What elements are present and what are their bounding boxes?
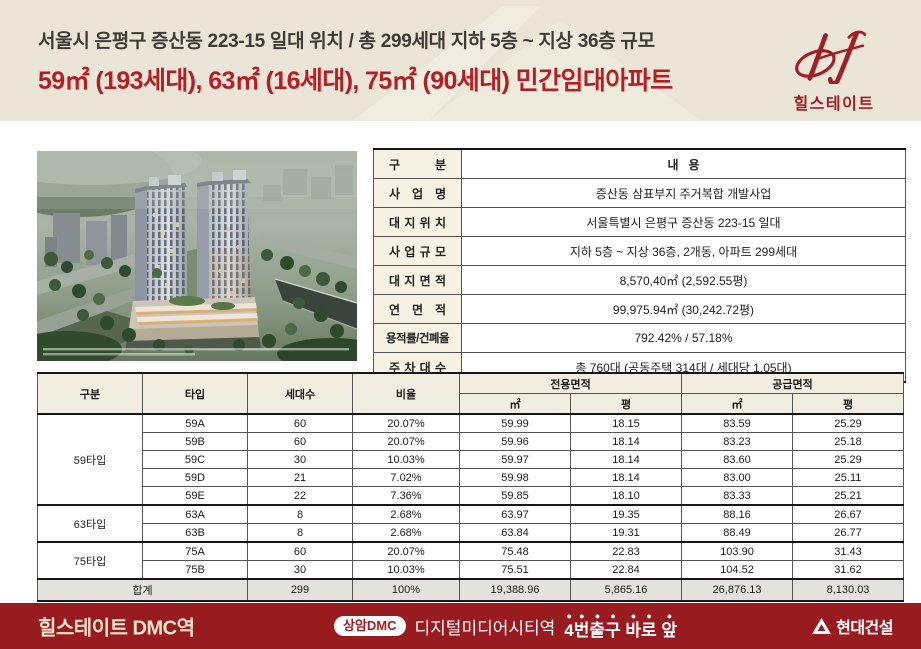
- col-header-supply-area: 공급면적: [682, 373, 904, 394]
- info-row-gross-area: 연 면 적 99,975.94㎡ (30,242.72평): [374, 295, 906, 324]
- cell-ex-py: 18.15: [571, 414, 682, 433]
- unit-row-59c: 59C 30 10.03% 59.97 18.14 83.60 25.29: [38, 451, 904, 469]
- cell-ratio: 10.03%: [353, 561, 460, 580]
- cell-ex-sqm: 59.96: [460, 433, 571, 451]
- unit-row-59b: 59B 60 20.07% 59.96 18.14 83.23 25.18: [38, 433, 904, 451]
- header-band: 서울시 은평구 증산동 223-15 일대 위치 / 총 299세대 지하 5층…: [0, 0, 921, 121]
- unit-row-63b: 63B 8 2.68% 63.84 19.31 88.49 26.77: [38, 524, 904, 543]
- total-su-py: 8,130.03: [793, 579, 904, 601]
- cell-ex-py: 18.14: [571, 433, 682, 451]
- col-header-pyeong: 평: [571, 394, 682, 415]
- cell-households: 21: [248, 469, 353, 487]
- cell-su-sqm: 88.16: [682, 505, 793, 524]
- cell-households: 60: [248, 542, 353, 561]
- project-summary-line: 서울시 은평구 증산동 223-15 일대 위치 / 총 299세대 지하 5층…: [38, 26, 672, 53]
- cell-ex-sqm: 59.97: [460, 451, 571, 469]
- cell-su-sqm: 83.33: [682, 487, 793, 506]
- cell-ex-py: 22.84: [571, 561, 682, 580]
- cell-type: 63A: [143, 505, 248, 524]
- group-label-75: 75타입: [38, 542, 143, 579]
- cell-su-py: 25.21: [793, 487, 904, 506]
- total-households: 299: [248, 579, 353, 601]
- cell-su-sqm: 103.90: [682, 542, 793, 561]
- cell-type: 59A: [143, 414, 248, 433]
- cell-households: 30: [248, 561, 353, 580]
- cell-su-py: 31.62: [793, 561, 904, 580]
- info-value: 지하 5층 ~ 지상 36층, 2개동, 아파트 299세대: [462, 237, 906, 266]
- exit-emphasis-text: 4번출구 바로 앞: [564, 611, 677, 641]
- cell-ex-sqm: 75.48: [460, 542, 571, 561]
- cell-ex-sqm: 75.51: [460, 561, 571, 580]
- total-ex-py: 5,865.16: [571, 579, 682, 601]
- info-label: 용적률/건폐율: [374, 324, 462, 353]
- group-label-59: 59타입: [38, 414, 143, 505]
- info-value: 서울특별시 은평구 증산동 223-15 일대: [462, 208, 906, 237]
- group-label-63: 63타입: [38, 505, 143, 542]
- cell-ex-sqm: 63.84: [460, 524, 571, 543]
- station-name: 디지털미디어시티역: [415, 614, 556, 639]
- info-label: 사 업 규 모: [374, 237, 462, 266]
- cell-ex-sqm: 59.99: [460, 414, 571, 433]
- unit-header-row-1: 구분 타입 세대수 비율 전용면적 공급면적: [38, 373, 904, 394]
- cell-su-py: 26.67: [793, 505, 904, 524]
- info-value: 792.42% / 57.18%: [462, 324, 906, 353]
- cell-households: 8: [248, 505, 353, 524]
- col-header-households: 세대수: [248, 373, 353, 414]
- building-rendering-image: [37, 151, 357, 361]
- cell-households: 22: [248, 487, 353, 506]
- info-label: 대 지 면 적: [374, 266, 462, 295]
- hillstate-script-h-icon: [786, 28, 882, 84]
- cell-households: 60: [248, 433, 353, 451]
- cell-ratio: 20.07%: [353, 414, 460, 433]
- cell-ratio: 20.07%: [353, 433, 460, 451]
- total-ratio: 100%: [353, 579, 460, 601]
- cell-su-py: 25.29: [793, 451, 904, 469]
- cell-households: 60: [248, 414, 353, 433]
- cell-su-sqm: 88.49: [682, 524, 793, 543]
- cell-su-sqm: 83.23: [682, 433, 793, 451]
- cell-households: 8: [248, 524, 353, 543]
- cell-su-py: 31.43: [793, 542, 904, 561]
- col-header-exclusive-area: 전용면적: [460, 373, 682, 394]
- info-label: 사 업 명: [374, 179, 462, 208]
- flyer-page: 서울시 은평구 증산동 223-15 일대 위치 / 총 299세대 지하 5층…: [0, 0, 921, 649]
- unit-row-75b: 75B 30 10.03% 75.51 22.84 104.52 31.62: [38, 561, 904, 580]
- cell-type: 59E: [143, 487, 248, 506]
- info-header-label: 구 분: [374, 149, 462, 179]
- unit-row-75a: 75타입 75A 60 20.07% 75.48 22.83 103.90 31…: [38, 542, 904, 561]
- info-value: 증산동 삼표부지 주거복합 개발사업: [462, 179, 906, 208]
- location-highlight: 상암DMC 디지털미디어시티역 4번출구 바로 앞: [334, 611, 677, 641]
- cell-ex-py: 22.83: [571, 542, 682, 561]
- unit-mix-headline: 59㎡ (193세대), 63㎡ (16세대), 75㎡ (90세대) 민간임대…: [38, 61, 672, 97]
- cell-ex-py: 19.35: [571, 505, 682, 524]
- cell-ex-py: 18.14: [571, 469, 682, 487]
- cell-type: 63B: [143, 524, 248, 543]
- col-header-sqm: ㎡: [682, 394, 793, 415]
- total-su-sqm: 26,876.13: [682, 579, 793, 601]
- cell-ex-sqm: 59.85: [460, 487, 571, 506]
- project-name: 힐스테이트 DMC역: [38, 612, 195, 641]
- builder-name: 현대건설: [836, 614, 893, 638]
- col-header-group: 구분: [38, 373, 143, 414]
- cell-ratio: 7.02%: [353, 469, 460, 487]
- cell-su-py: 25.18: [793, 433, 904, 451]
- info-row-business-name: 사 업 명 증산동 삼표부지 주거복합 개발사업: [374, 179, 906, 208]
- cell-su-sqm: 83.59: [682, 414, 793, 433]
- info-label: 대 지 위 치: [374, 208, 462, 237]
- cell-type: 75A: [143, 542, 248, 561]
- total-label: 합계: [38, 579, 248, 601]
- cell-type: 75B: [143, 561, 248, 580]
- info-value: 8,570,40㎡ (2,592.55평): [462, 266, 906, 295]
- cell-ratio: 10.03%: [353, 451, 460, 469]
- info-label: 연 면 적: [374, 295, 462, 324]
- cell-ratio: 2.68%: [353, 505, 460, 524]
- cell-su-py: 25.11: [793, 469, 904, 487]
- hillstate-logo: 힐스테이트: [775, 28, 893, 114]
- cell-su-sqm: 83.60: [682, 451, 793, 469]
- cell-ex-sqm: 59.98: [460, 469, 571, 487]
- footer-band: 힐스테이트 DMC역 상암DMC 디지털미디어시티역 4번출구 바로 앞 현대건…: [0, 603, 921, 649]
- header-text-block: 서울시 은평구 증산동 223-15 일대 위치 / 총 299세대 지하 5층…: [38, 26, 672, 97]
- info-row-site-area: 대 지 면 적 8,570,40㎡ (2,592.55평): [374, 266, 906, 295]
- cell-ratio: 2.68%: [353, 524, 460, 543]
- unit-row-59d: 59D 21 7.02% 59.98 18.14 83.00 25.11: [38, 469, 904, 487]
- cell-households: 30: [248, 451, 353, 469]
- cell-type: 59D: [143, 469, 248, 487]
- cell-su-sqm: 104.52: [682, 561, 793, 580]
- unit-row-63a: 63타입 63A 8 2.68% 63.97 19.35 88.16 26.67: [38, 505, 904, 524]
- cell-ratio: 7.36%: [353, 487, 460, 506]
- hillstate-logo-text: 힐스테이트: [775, 90, 893, 114]
- col-header-type: 타입: [143, 373, 248, 414]
- cell-su-sqm: 83.00: [682, 469, 793, 487]
- cell-ex-py: 18.10: [571, 487, 682, 506]
- cell-ratio: 20.07%: [353, 542, 460, 561]
- cell-ex-py: 19.31: [571, 524, 682, 543]
- cell-su-py: 26.77: [793, 524, 904, 543]
- project-info-table: 구 분 내 용 사 업 명 증산동 삼표부지 주거복합 개발사업 대 지 위 치…: [373, 148, 906, 383]
- col-header-sqm: ㎡: [460, 394, 571, 415]
- cell-type: 59C: [143, 451, 248, 469]
- col-header-ratio: 비율: [353, 373, 460, 414]
- hyundai-enc-logo: 현대건설: [812, 614, 893, 638]
- info-row-scale: 사 업 규 모 지하 5층 ~ 지상 36층, 2개동, 아파트 299세대: [374, 237, 906, 266]
- unit-row-59a: 59타입 59A 60 20.07% 59.99 18.15 83.59 25.…: [38, 414, 904, 433]
- info-header-value: 내 용: [462, 149, 906, 179]
- info-row-location: 대 지 위 치 서울특별시 은평구 증산동 223-15 일대: [374, 208, 906, 237]
- unit-type-table: 구분 타입 세대수 비율 전용면적 공급면적 ㎡ 평 ㎡ 평 59타입 59A …: [37, 372, 904, 602]
- unit-row-59e: 59E 22 7.36% 59.85 18.10 83.33 25.21: [38, 487, 904, 506]
- hyundai-triangle-icon: [812, 618, 831, 634]
- sangam-dmc-badge: 상암DMC: [334, 616, 406, 637]
- col-header-pyeong: 평: [793, 394, 904, 415]
- cell-type: 59B: [143, 433, 248, 451]
- cell-ex-sqm: 63.97: [460, 505, 571, 524]
- cell-su-py: 25.29: [793, 414, 904, 433]
- info-header-row: 구 분 내 용: [374, 149, 906, 179]
- info-row-far-bcr: 용적률/건폐율 792.42% / 57.18%: [374, 324, 906, 353]
- unit-total-row: 합계 299 100% 19,388.96 5,865.16 26,876.13…: [38, 579, 904, 601]
- info-value: 99,975.94㎡ (30,242.72평): [462, 295, 906, 324]
- cell-ex-py: 18.14: [571, 451, 682, 469]
- total-ex-sqm: 19,388.96: [460, 579, 571, 601]
